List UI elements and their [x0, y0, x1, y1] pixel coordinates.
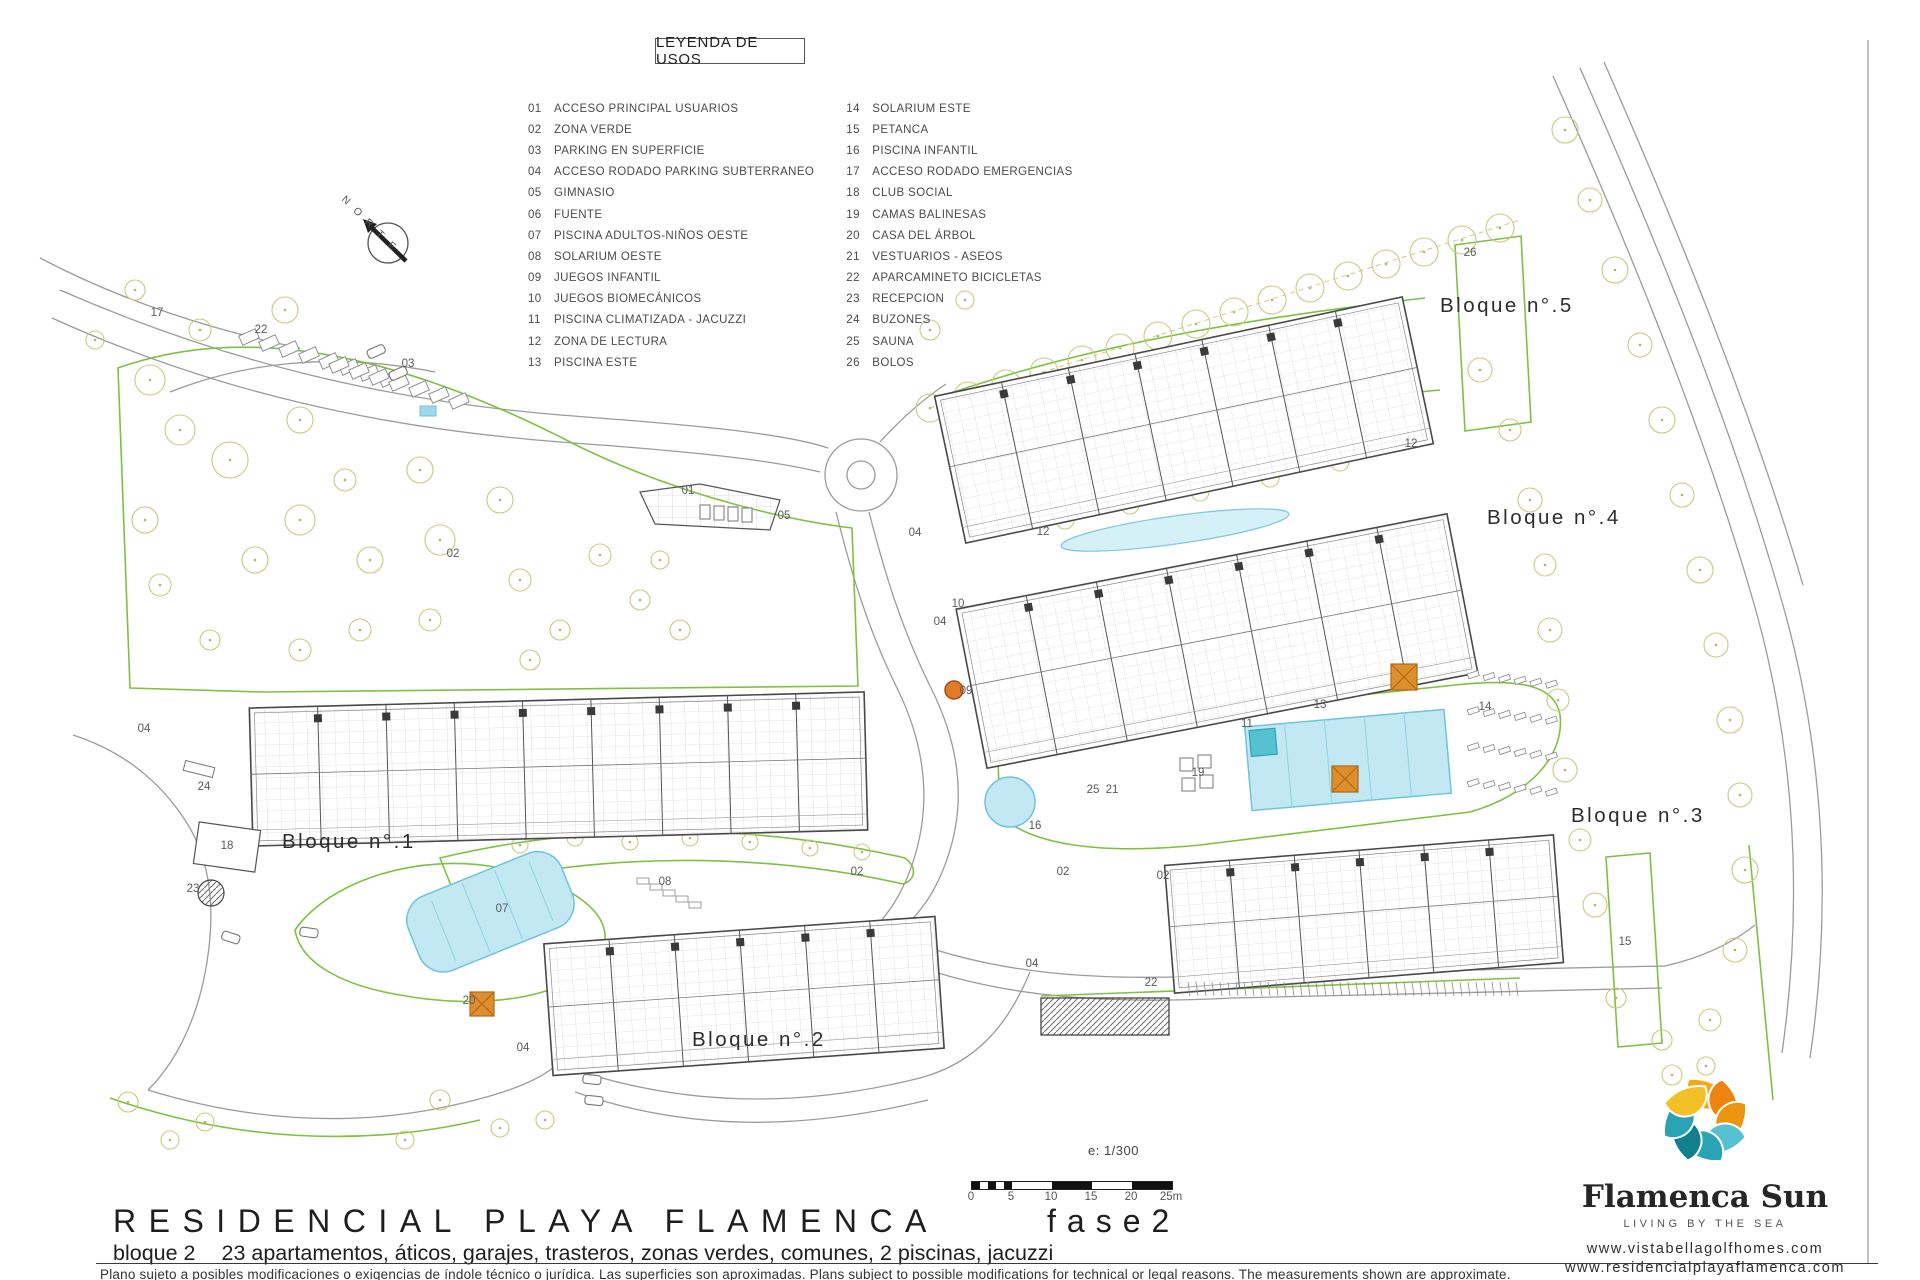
- legend-item: 05GIMNASIO: [528, 183, 814, 204]
- legend-item: 15PETANCA: [846, 119, 1072, 140]
- legend-item: 08SOLARIUM OESTE: [528, 246, 814, 267]
- legend-item-label: SAUNA: [872, 336, 914, 348]
- legend-item-number: 13: [528, 357, 554, 369]
- legend-item-number: 23: [846, 293, 872, 305]
- legend-item: 13PISCINA ESTE: [528, 352, 814, 373]
- sun-lounger-icon: [1499, 782, 1511, 790]
- legend-item-number: 08: [528, 251, 554, 263]
- legend-item-number: 22: [846, 272, 872, 284]
- legend-item-number: 09: [528, 272, 554, 284]
- plan-use-number: 22: [1145, 977, 1158, 989]
- legend-item: 14SOLARIUM ESTE: [846, 98, 1072, 119]
- legend-item-label: PISCINA INFANTIL: [872, 145, 977, 157]
- bike-rack-tick: [1492, 982, 1494, 996]
- subtitle-description: 23 apartamentos, áticos, garajes, traste…: [222, 1241, 1054, 1265]
- legend-item-label: JUEGOS BIOMECÁNICOS: [554, 293, 702, 305]
- sun-lounger-icon: [1545, 752, 1557, 760]
- legend-item-label: JUEGOS INFANTIL: [554, 272, 661, 284]
- block-label: Bloque n°.1: [282, 830, 416, 853]
- legend-item: 19CAMAS BALINESAS: [846, 204, 1072, 225]
- sun-lounger-icon: [689, 902, 701, 908]
- plan-use-number: 12: [1037, 526, 1050, 538]
- sun-lounger-icon: [637, 878, 649, 884]
- legend-item-label: ACCESO PRINCIPAL USUARIOS: [554, 103, 738, 115]
- plan-use-number: 25: [1087, 784, 1100, 796]
- bike-rack-tick: [1300, 982, 1302, 996]
- legend-item: 26BOLOS: [846, 352, 1072, 373]
- legend-item-number: 18: [846, 187, 872, 199]
- legend-item: 11PISCINA CLIMATIZADA - JACUZZI: [528, 310, 814, 331]
- sun-lounger-icon: [1514, 748, 1526, 756]
- plan-use-number: 11: [1241, 718, 1253, 730]
- parking-stall: [299, 347, 320, 363]
- legend-item-number: 02: [528, 124, 554, 136]
- sun-lounger-icon: [1514, 712, 1526, 720]
- scale-tick: 20: [1125, 1191, 1138, 1203]
- scale-tick: 15: [1085, 1191, 1098, 1203]
- parking-stall: [409, 381, 430, 397]
- brand-tagline: LIVING BY THE SEA: [1555, 1218, 1855, 1230]
- legend-item-label: ZONA VERDE: [554, 124, 632, 136]
- sun-lounger-icon: [1483, 781, 1495, 789]
- legend-item-number: 26: [846, 357, 872, 369]
- bike-rack-tick: [1508, 982, 1510, 996]
- subtitle-block-ref: bloque 2: [113, 1241, 196, 1265]
- legend-item-label: RECEPCION: [872, 293, 944, 305]
- sun-lounger-icon: [1499, 710, 1511, 718]
- plan-use-number: 04: [138, 723, 151, 735]
- plan-use-number: 15: [1619, 936, 1632, 948]
- plan-use-number: 20: [463, 995, 476, 1007]
- sun-lounger-icon: [1499, 746, 1511, 754]
- bike-rack-tick: [1436, 982, 1438, 996]
- pool-kiosk: [420, 406, 436, 416]
- parking-stall: [429, 387, 450, 403]
- brand-logo: Flamenca Sun LIVING BY THE SEA www.vista…: [1555, 1066, 1855, 1278]
- legend-item-label: CASA DEL ÁRBOL: [872, 230, 976, 242]
- legend-item-label: FUENTE: [554, 209, 602, 221]
- legend-item-label: PISCINA ESTE: [554, 357, 637, 369]
- legend-item-label: BOLOS: [872, 357, 914, 369]
- legend-item-label: PISCINA ADULTOS-NIÑOS OESTE: [554, 230, 748, 242]
- bike-rack-tick: [1452, 982, 1454, 996]
- legend-item-label: CAMAS BALINESAS: [872, 209, 986, 221]
- scale-tick: 25m: [1160, 1191, 1182, 1203]
- sun-lounger-icon: [1483, 745, 1495, 753]
- legend-item-number: 24: [846, 314, 872, 326]
- legend-item-number: 21: [846, 251, 872, 263]
- legend-item: 25SAUNA: [846, 331, 1072, 352]
- legend-item-label: SOLARIUM OESTE: [554, 251, 662, 263]
- plan-use-number: 03: [402, 358, 415, 370]
- plan-use-number: 09: [960, 685, 973, 697]
- legend-item-number: 03: [528, 145, 554, 157]
- legend-item-number: 15: [846, 124, 872, 136]
- legend-item: 18CLUB SOCIAL: [846, 183, 1072, 204]
- legend-title: LEYENDA DE USOS: [655, 38, 805, 64]
- scale-segment: [1052, 1182, 1092, 1189]
- plan-use-number: 02: [447, 548, 460, 560]
- bike-rack-tick: [1460, 982, 1462, 996]
- compass-letter: O: [350, 205, 364, 219]
- plan-use-number: 17: [151, 307, 164, 319]
- legend-item-number: 10: [528, 293, 554, 305]
- sun-lounger-icon: [1530, 678, 1542, 686]
- project-title: RESIDENCIAL PLAYA FLAMENCA: [113, 1203, 939, 1240]
- legend-item-number: 17: [846, 166, 872, 178]
- legend-item: 02ZONA VERDE: [528, 119, 814, 140]
- car-icon: [583, 1074, 602, 1085]
- scale-segment: [1004, 1182, 1012, 1189]
- legend-column-2: 14SOLARIUM ESTE15PETANCA16PISCINA INFANT…: [846, 98, 1072, 373]
- plan-use-number: 19: [1192, 767, 1205, 779]
- sun-lounger-icon: [1467, 779, 1479, 787]
- legend-column-1: 01ACCESO PRINCIPAL USUARIOS02ZONA VERDE0…: [528, 98, 814, 373]
- plan-use-number: 23: [187, 883, 200, 895]
- scale-ratio: e: 1/300: [1088, 1143, 1139, 1158]
- parking-stall: [279, 341, 300, 357]
- legend-item: 23RECEPCION: [846, 289, 1072, 310]
- legend-item: 04ACCESO RODADO PARKING SUBTERRANEO: [528, 162, 814, 183]
- plan-use-number: 05: [778, 510, 791, 522]
- legend-item-label: ZONA DE LECTURA: [554, 336, 667, 348]
- legend-item: 21VESTUARIOS - ASEOS: [846, 246, 1072, 267]
- plan-use-number: 02: [1057, 866, 1070, 878]
- north-compass: NORTE: [339, 193, 408, 263]
- bike-rack-tick: [1468, 982, 1470, 996]
- legend-item: 10JUEGOS BIOMECÁNICOS: [528, 289, 814, 310]
- legend-item-label: ACCESO RODADO EMERGENCIAS: [872, 166, 1072, 178]
- legend-item: 20CASA DEL ÁRBOL: [846, 225, 1072, 246]
- sun-lounger-icon: [676, 896, 688, 902]
- legend-item: 22APARCAMINETO BICICLETAS: [846, 268, 1072, 289]
- scale-segment: [988, 1182, 996, 1189]
- legend-item-number: 07: [528, 230, 554, 242]
- legend-item-number: 12: [528, 336, 554, 348]
- block-label: Bloque n°.5: [1440, 294, 1574, 317]
- building-block-1: [249, 692, 867, 846]
- plan-use-number: 26: [1464, 247, 1477, 259]
- plan-use-number: 04: [517, 1042, 530, 1054]
- sun-lounger-icon: [1530, 786, 1542, 794]
- block-label: Bloque n°.4: [1487, 506, 1621, 529]
- sun-lounger-icon: [1545, 680, 1557, 688]
- sun-lounger-icon: [1467, 707, 1479, 715]
- plan-use-number: 18: [221, 840, 234, 852]
- sun-lounger-icon: [1499, 674, 1511, 682]
- bike-rack-tick: [1444, 982, 1446, 996]
- scale-segment: [980, 1182, 988, 1189]
- legend-item-number: 20: [846, 230, 872, 242]
- legend-item-label: ACCESO RODADO PARKING SUBTERRANEO: [554, 166, 814, 178]
- legend-item-label: CLUB SOCIAL: [872, 187, 952, 199]
- legend-item-number: 16: [846, 145, 872, 157]
- scale-tick: 10: [1045, 1191, 1058, 1203]
- sun-lounger-icon: [1467, 743, 1479, 751]
- scale-segment: [996, 1182, 1004, 1189]
- legend-item-label: BUZONES: [872, 314, 930, 326]
- scale-segment: [972, 1182, 980, 1189]
- plan-use-number: 14: [1479, 701, 1492, 713]
- site-plan-sheet: NORTE 1722030201050404241823200408070202…: [0, 0, 1920, 1280]
- plan-use-number: 22: [255, 324, 268, 336]
- phase-label: fase2: [1047, 1203, 1180, 1240]
- bike-rack-tick: [1332, 982, 1334, 996]
- legend-item: 01ACCESO PRINCIPAL USUARIOS: [528, 98, 814, 119]
- plan-use-number: 12: [1405, 438, 1418, 450]
- legend-item-label: PISCINA CLIMATIZADA - JACUZZI: [554, 314, 746, 326]
- disclaimer-text: Plano sujeto a posibles modificaciones o…: [100, 1267, 1511, 1280]
- car-icon: [221, 930, 241, 944]
- legend-item-label: PARKING EN SUPERFICIE: [554, 145, 705, 157]
- plan-use-number: 21: [1106, 784, 1119, 796]
- legend-item: 07PISCINA ADULTOS-NIÑOS OESTE: [528, 225, 814, 246]
- legend-item: 12ZONA DE LECTURA: [528, 331, 814, 352]
- plan-use-number: 10: [952, 598, 965, 610]
- plan-use-number: 24: [198, 781, 211, 793]
- plan-use-number: 07: [496, 903, 509, 915]
- legend-item: 16PISCINA INFANTIL: [846, 140, 1072, 161]
- bike-rack-tick: [1484, 982, 1486, 996]
- plan-use-number: 01: [682, 485, 695, 497]
- building-block-2: [544, 916, 944, 1075]
- legend-item-number: 19: [846, 209, 872, 221]
- sun-lounger-icon: [1545, 716, 1557, 724]
- bike-rack-tick: [1476, 982, 1478, 996]
- scale-tick: 0: [968, 1191, 974, 1203]
- legend-item-number: 01: [528, 103, 554, 115]
- car-icon: [366, 344, 386, 360]
- plan-use-number: 04: [909, 527, 922, 539]
- legend-item-number: 11: [528, 314, 554, 326]
- legend-item-number: 14: [846, 103, 872, 115]
- legend: 01ACCESO PRINCIPAL USUARIOS02ZONA VERDE0…: [528, 98, 1088, 373]
- bike-rack-tick: [1308, 982, 1310, 996]
- sun-swirl-icon: [1650, 1066, 1760, 1170]
- parking-stall: [449, 393, 470, 409]
- bike-rack-tick: [1500, 982, 1502, 996]
- legend-item: 24BUZONES: [846, 310, 1072, 331]
- brand-url-1[interactable]: www.vistabellagolfhomes.com: [1555, 1240, 1855, 1259]
- plan-use-number: 13: [1314, 699, 1327, 711]
- legend-item: 17ACCESO RODADO EMERGENCIAS: [846, 162, 1072, 183]
- plan-use-number: 08: [659, 876, 672, 888]
- car-icon: [585, 1095, 604, 1106]
- plan-use-number: 02: [851, 866, 864, 878]
- scale-segment: [1132, 1182, 1172, 1189]
- scale-tick: 5: [1008, 1191, 1014, 1203]
- legend-item-number: 06: [528, 209, 554, 221]
- scale-bar: [971, 1181, 1173, 1190]
- legend-item-label: SOLARIUM ESTE: [872, 103, 971, 115]
- plan-use-number: 04: [1026, 958, 1039, 970]
- block-label: Bloque n°.3: [1571, 804, 1705, 827]
- brand-url-2[interactable]: www.residencialplayaflamenca.com: [1555, 1259, 1855, 1278]
- legend-item-label: PETANCA: [872, 124, 928, 136]
- brand-name: Flamenca Sun: [1555, 1179, 1855, 1215]
- legend-item: 03PARKING EN SUPERFICIE: [528, 140, 814, 161]
- sun-lounger-icon: [1530, 750, 1542, 758]
- sun-lounger-icon: [1530, 714, 1542, 722]
- plan-use-number: 02: [1157, 870, 1170, 882]
- compass-letter: N: [339, 193, 353, 207]
- sun-lounger-icon: [1483, 673, 1495, 681]
- car-icon: [299, 927, 318, 938]
- legend-item-number: 05: [528, 187, 554, 199]
- sun-lounger-icon: [1514, 676, 1526, 684]
- scale-segment: [1012, 1182, 1052, 1189]
- plan-use-number: 04: [934, 616, 947, 628]
- bike-rack-tick: [1516, 982, 1518, 996]
- legend-item: 09JUEGOS INFANTIL: [528, 268, 814, 289]
- sun-lounger-icon: [1545, 788, 1557, 796]
- legend-item-number: 04: [528, 166, 554, 178]
- plan-use-number: 16: [1029, 820, 1042, 832]
- legend-item-number: 25: [846, 336, 872, 348]
- block-label: Bloque n°.2: [692, 1028, 826, 1051]
- sun-lounger-icon: [1514, 784, 1526, 792]
- bike-rack-tick: [1316, 982, 1318, 996]
- legend-item-label: VESTUARIOS - ASEOS: [872, 251, 1003, 263]
- sun-lounger-icon: [663, 890, 675, 896]
- legend-item-label: APARCAMINETO BICICLETAS: [872, 272, 1042, 284]
- bike-rack-tick: [1324, 982, 1326, 996]
- legend-item-label: GIMNASIO: [554, 187, 615, 199]
- scale-segment: [1092, 1182, 1132, 1189]
- legend-item: 06FUENTE: [528, 204, 814, 225]
